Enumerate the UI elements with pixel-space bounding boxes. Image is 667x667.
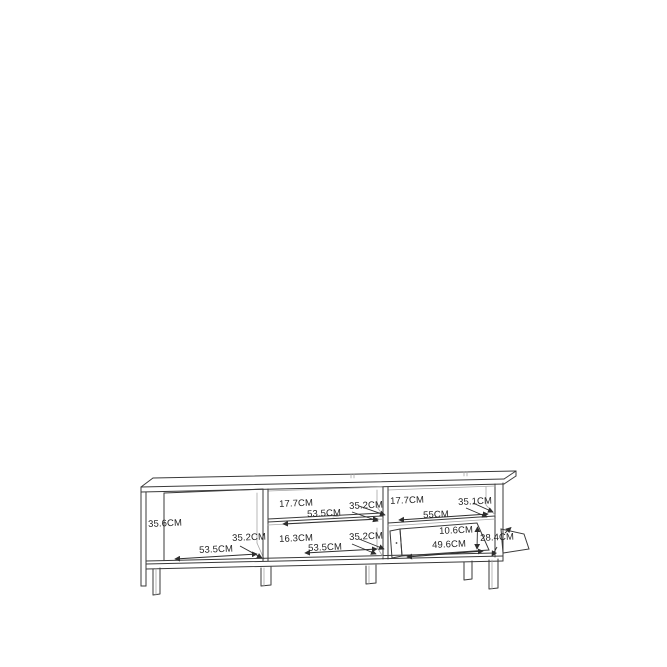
middle-top-depth-label: 35.2CM [349, 501, 383, 512]
left-width-label: 53.5CM [199, 545, 233, 556]
cabinet-line-art [0, 0, 667, 667]
right-top-height-label: 17.7CM [390, 496, 424, 507]
left-depth-label: 35.2CM [232, 533, 266, 544]
flap-height-label: 10.6CM [439, 526, 473, 537]
right-top-depth-label: 35.1CM [458, 497, 492, 508]
middle-bottom-width-label: 53.5CM [308, 543, 342, 554]
flap-width-label: 49.6CM [432, 540, 466, 551]
right-top-width-label: 55CM [423, 510, 449, 521]
left-height-label: 35.6CM [148, 519, 182, 530]
middle-top-width-label: 53.5CM [307, 509, 341, 520]
middle-bottom-depth-label: 35.2CM [349, 532, 383, 543]
flap-depth-label: 28.4CM [480, 533, 514, 544]
technical-drawing-page: 35.6CM 53.5CM 35.2CM 17.7CM 53.5CM 35.2C… [0, 0, 667, 667]
